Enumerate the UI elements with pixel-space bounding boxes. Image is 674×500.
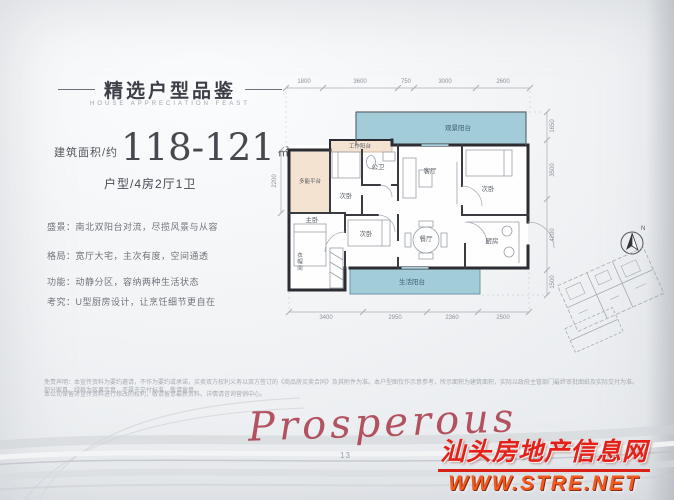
room-label-master: 主卧	[306, 214, 319, 224]
dim-bottom-2: 2950	[388, 315, 401, 321]
dim-bottom-1: 3400	[319, 315, 332, 321]
room-label-kitchen: 厨房	[486, 235, 499, 245]
area-unit: ㎡	[278, 144, 289, 165]
room-label-living: 客厅	[424, 165, 437, 175]
feature-line-4: 考究：U型厨房设计，让烹饪细节更自在	[47, 295, 216, 308]
dim-top-1: 1800	[297, 79, 310, 85]
title-rule-right	[245, 89, 282, 90]
dim-right-3: 4200	[550, 228, 556, 241]
page-number: 13	[340, 451, 351, 460]
dim-right-4: 1500	[550, 275, 556, 288]
dim-bottom-4: 2500	[496, 315, 509, 321]
room-label-platform: 多能平台	[299, 177, 321, 185]
disclaimer-line-2: 本公司保留对宣传资料进行修改的权利，敬请留意最新资料。详情请咨询营销中心。	[44, 391, 640, 399]
room-label-bedroom3: 次卧	[360, 228, 373, 238]
feature-line-2: 格局：宽厅大宅，主次有度，空间通透	[47, 249, 209, 262]
dim-right-1: 1650	[550, 119, 556, 132]
compass-icon	[621, 232, 643, 254]
area-label: 建筑面积/约	[54, 144, 118, 165]
page-title: 精选户型品鉴	[104, 76, 236, 103]
page-edge-shade	[646, 0, 674, 500]
area-value: 118-121	[121, 130, 275, 165]
dim-top-3: 750	[401, 79, 411, 85]
unit-layout-label: 户型/4房2厅1卫	[104, 175, 196, 192]
watermark-site-url: WWW.STRE.NET	[418, 472, 670, 496]
site-watermark: 汕头房地产信息网 WWW.STRE.NET	[418, 432, 670, 496]
dim-top-2: 3600	[353, 79, 366, 85]
poster-canvas: 精选户型品鉴 HOUSE APPRECIATION FEAST 建筑面积/约 1…	[0, 0, 674, 500]
room-label-bath: 公卫	[372, 161, 385, 171]
title-rule-left	[58, 89, 95, 90]
room-label-cloak: 衣帽间	[295, 252, 303, 272]
area-block: 建筑面积/约 118-121 ㎡	[54, 130, 289, 165]
dim-right-2: 3500	[550, 163, 556, 176]
compass-north-label: N	[641, 226, 645, 232]
dim-top-5: 2600	[496, 79, 509, 85]
room-label-bedroom4: 次卧	[482, 183, 495, 193]
room-label-life-balcony: 生活阳台	[399, 276, 425, 286]
room-label-bedroom2: 次卧	[340, 190, 353, 200]
title-block: 精选户型品鉴	[58, 76, 282, 103]
dim-left-1: 2200	[272, 174, 278, 187]
feature-line-1: 盛景：南北双阳台对流，尽揽风景与从容	[47, 220, 218, 233]
room-label-dining: 餐厅	[420, 233, 433, 243]
feature-line-3: 功能：动静分区，容纳两种生活状态	[47, 275, 199, 288]
dim-bottom-3: 2360	[445, 315, 458, 321]
room-label-view-balcony: 观景阳台	[445, 122, 471, 132]
room-label-work-balcony: 工作阳台	[349, 142, 371, 150]
page-subtitle: HOUSE APPRECIATION FEAST	[58, 101, 282, 107]
dim-top-4: 3000	[438, 79, 451, 85]
watermark-site-name: 汕头房地产信息网	[438, 432, 650, 472]
